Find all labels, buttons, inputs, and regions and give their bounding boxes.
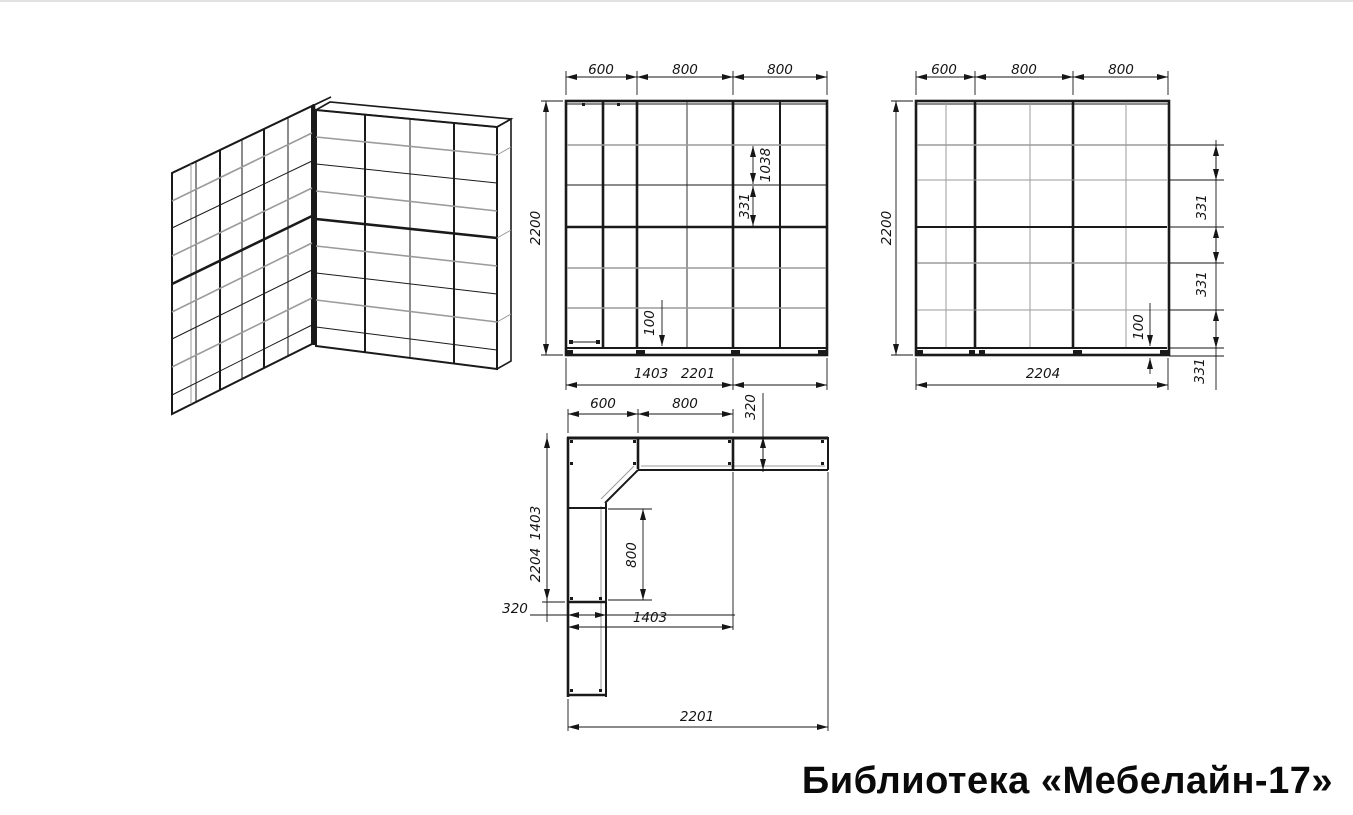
plan-dim-depth-right: 320	[743, 394, 759, 420]
front-dim-inner-height: 1038	[758, 148, 774, 182]
front-dim-top-1: 600	[588, 62, 614, 78]
isometric-view	[172, 97, 511, 414]
back-dim-shelf-3: 331	[1192, 358, 1208, 384]
back-dim-height: 2200	[879, 211, 895, 245]
back-elevation-view: 600 800 800 2200 331 331 331 100 2204	[879, 62, 1224, 390]
plan-dim-depth-left: 320	[502, 601, 528, 617]
front-dim-plinth: 100	[642, 310, 658, 336]
back-dim-plinth: 100	[1131, 314, 1147, 340]
plan-dim-left-wing: 1403	[528, 506, 544, 540]
front-dim-top-2: 800	[672, 62, 698, 78]
front-dim-bottom-total: 2201	[681, 366, 715, 382]
back-dim-shelf-2: 331	[1194, 271, 1210, 297]
front-dim-inner-shelf: 331	[737, 193, 753, 219]
front-dim-height: 2200	[528, 211, 544, 245]
blueprint-page: 600 800 800 2200 1038 331 100 1403 2201	[0, 0, 1353, 815]
product-title: Библиотека «Мебелайн-17»	[802, 760, 1333, 803]
front-elevation-view: 600 800 800 2200 1038 331 100 1403 2201	[528, 62, 827, 390]
plan-structure	[567, 437, 828, 697]
plan-dim-inner-length: 1403	[633, 610, 667, 626]
plan-dim-top-1: 600	[590, 396, 616, 412]
back-dim-top-2: 800	[1011, 62, 1037, 78]
back-dim-top-1: 600	[931, 62, 957, 78]
back-dim-top-3: 800	[1108, 62, 1134, 78]
plan-dim-bottom-total: 2201	[680, 709, 714, 725]
plan-dim-left-total: 2204	[528, 548, 544, 582]
plan-view: 600 800 320 1403 2204 320 800 1403 2201	[502, 393, 828, 731]
front-elevation-structure	[566, 101, 827, 355]
plan-dimensions	[530, 393, 828, 731]
blueprint-canvas: 600 800 800 2200 1038 331 100 1403 2201	[0, 0, 1353, 815]
front-dim-top-3: 800	[767, 62, 793, 78]
front-dim-bottom-wing: 1403	[634, 366, 668, 382]
plan-dim-inner-width: 800	[624, 542, 640, 568]
back-elevation-dimensions	[891, 71, 1224, 390]
back-dim-bottom-total: 2204	[1026, 366, 1060, 382]
plan-dim-top-2: 800	[672, 396, 698, 412]
back-dim-shelf-1: 331	[1194, 194, 1210, 220]
